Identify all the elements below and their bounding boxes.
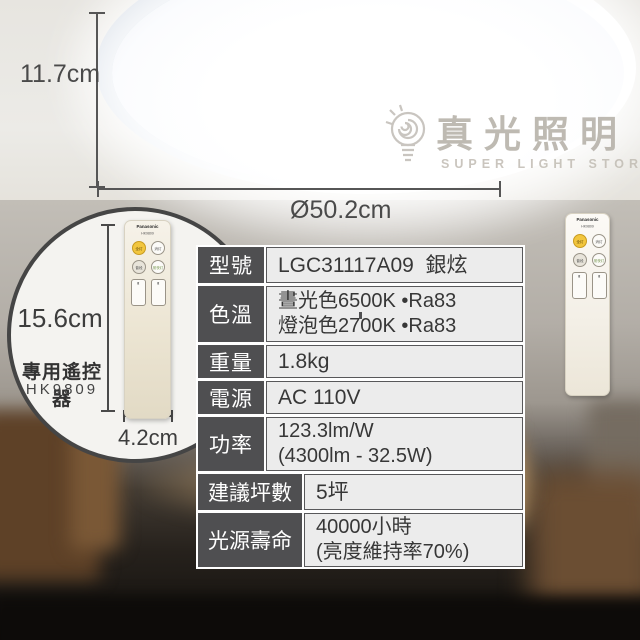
remote-color-rocker: ∧∨ (151, 279, 166, 306)
height-dimension-line (96, 12, 98, 188)
remote-model-text: HK9809 (136, 232, 159, 236)
product-infographic: 11.7cm Ø50.2cm 真光照明 SUPER LIGHT STORE 15… (0, 0, 640, 640)
down-arrow-icon: ∨ (578, 275, 581, 279)
spec-value: AC 110V (278, 385, 522, 410)
diameter-dimension-label: Ø50.2cm (290, 196, 391, 225)
remote-off-button: 消灯 (151, 241, 165, 255)
spec-value: 1.8kg (278, 349, 522, 374)
spec-value: (4300lm - 32.5W) (278, 444, 522, 469)
lightbulb-watermark-icon (382, 102, 432, 172)
remote-night-light-button: 常夜灯 (151, 260, 165, 274)
remote-height-label: 15.6cm (17, 303, 103, 334)
remote-color-rocker: ∧∨ (592, 272, 607, 299)
spec-table: 型號 LGC31117A09 銀炫 色溫 晝光色6500K •Ra83 燈泡色2… (196, 245, 525, 569)
spec-row-suggested-area: 建議坪數 5坪 (198, 474, 523, 510)
spec-value: 40000小時 (316, 515, 522, 540)
remote-control: Panasonic HK9809 全灯 消灯 普段 常夜灯 ∧∨ ∧∨ (124, 220, 171, 419)
spec-label: 色溫 (198, 286, 264, 342)
spec-label: 光源壽命 (198, 513, 302, 567)
down-arrow-icon: ∨ (598, 275, 601, 279)
spec-label: 重量 (198, 345, 264, 378)
floor-shadow (0, 595, 640, 640)
remote-model-label: HK9809 (16, 381, 108, 398)
remote-night-light-button: 常夜灯 (592, 253, 606, 267)
remote-off-label: 消灯 (154, 245, 161, 250)
spec-label: 電源 (198, 381, 264, 414)
spec-label: 建議坪數 (198, 474, 302, 510)
spec-row-lifespan: 光源壽命 40000小時 (亮度維持率70%) (198, 513, 523, 567)
remote-off-label: 消灯 (595, 238, 602, 243)
range-connector (359, 312, 362, 319)
remote-night-label: 常夜灯 (153, 264, 164, 269)
spec-row-weight: 重量 1.8kg (198, 345, 523, 378)
down-arrow-icon: ∨ (137, 282, 140, 286)
remote-full-light-label: 全灯 (135, 245, 142, 250)
remote-full-light-button: 全灯 (132, 241, 146, 255)
spec-value: 123.3lm/W (278, 419, 522, 444)
remote-control-photo: Panasonic HK9809 全灯 消灯 普段 常夜灯 ∧∨ ∧∨ (565, 213, 610, 396)
remote-off-button: 消灯 (592, 234, 606, 248)
remote-brand-logo: Panasonic (576, 217, 600, 222)
spec-value: 晝光色6500K •Ra83 (278, 289, 522, 314)
remote-normal-button: 普段 (573, 253, 587, 267)
remote-normal-label: 普段 (135, 264, 142, 269)
spec-value: (亮度維持率70%) (316, 540, 522, 565)
spec-value: 5坪 (316, 480, 522, 505)
spec-row-power-source: 電源 AC 110V (198, 381, 523, 414)
remote-brand-logo: Panasonic (135, 224, 160, 229)
remote-normal-button: 普段 (132, 260, 146, 274)
remote-model-text: HK9809 (577, 225, 599, 229)
remote-brightness-rocker: ∧∨ (572, 272, 587, 299)
remote-width-label: 4.2cm (115, 425, 181, 451)
spec-label: 型號 (198, 247, 264, 283)
spec-value: LGC31117A09 銀炫 (278, 253, 522, 278)
spec-value: 燈泡色2700K •Ra83 (278, 314, 522, 339)
remote-full-light-label: 全灯 (576, 238, 583, 243)
remote-night-label: 常夜灯 (594, 257, 605, 262)
watermark-subtitle-text: SUPER LIGHT STORE (441, 157, 640, 171)
remote-normal-label: 普段 (576, 257, 583, 262)
watermark-brand-text: 真光照明 (436, 104, 628, 158)
spec-row-model: 型號 LGC31117A09 銀炫 (198, 247, 523, 283)
spec-row-efficiency: 功率 123.3lm/W (4300lm - 32.5W) (198, 417, 523, 471)
down-arrow-icon: ∨ (157, 282, 160, 286)
spec-row-color-temp: 色溫 晝光色6500K •Ra83 燈泡色2700K •Ra83 (198, 286, 523, 342)
spec-label: 功率 (198, 417, 264, 471)
remote-brightness-rocker: ∧∨ (131, 279, 146, 306)
diameter-dimension-line (97, 188, 501, 190)
height-dimension-label: 11.7cm (20, 60, 96, 89)
remote-full-light-button: 全灯 (573, 234, 587, 248)
